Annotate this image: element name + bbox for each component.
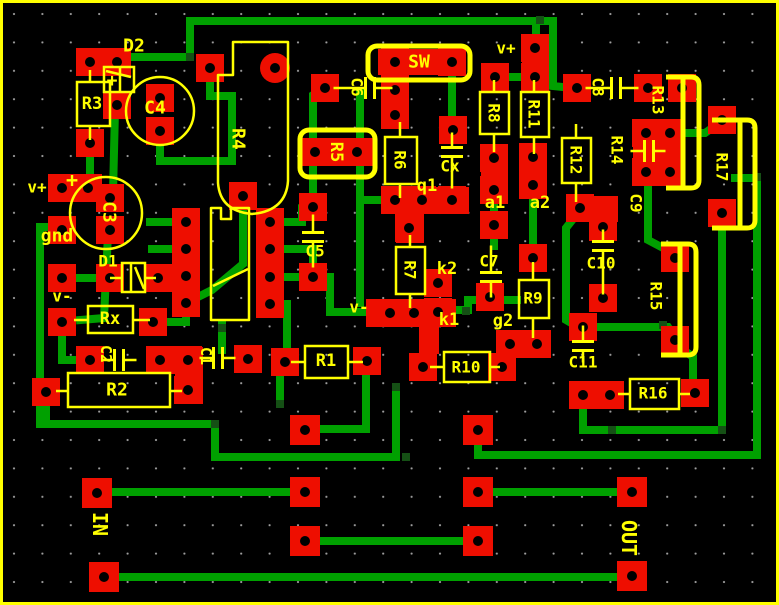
pad-hole xyxy=(390,85,400,95)
silk-label-v-[interactable]: v- xyxy=(52,287,71,306)
pad-hole xyxy=(489,153,499,163)
silk-label-g2[interactable]: g2 xyxy=(493,311,513,331)
pad-hole xyxy=(155,355,165,365)
pad-hole xyxy=(605,390,615,400)
pad-hole xyxy=(473,536,483,546)
silk-label-R9[interactable]: R9 xyxy=(523,289,542,308)
pad-hole xyxy=(183,355,193,365)
pad-hole xyxy=(385,308,395,318)
pad-hole xyxy=(352,147,362,157)
silk-label-gnd[interactable]: gnd xyxy=(41,226,74,247)
via[interactable] xyxy=(211,420,219,428)
pad-hole xyxy=(320,83,330,93)
pad-hole xyxy=(300,487,310,497)
pad-hole xyxy=(181,244,191,254)
silk-label-C5[interactable]: C5 xyxy=(305,242,324,261)
pad-hole xyxy=(473,487,483,497)
via[interactable] xyxy=(718,426,726,434)
silk-label-a1[interactable]: a1 xyxy=(485,193,505,213)
pad-hole xyxy=(280,357,290,367)
pad-hole xyxy=(362,356,372,366)
pad-hole xyxy=(390,57,400,67)
pad-hole xyxy=(265,272,275,282)
silk-label-k1[interactable]: k1 xyxy=(439,310,459,330)
silk-label-R3[interactable]: R3 xyxy=(82,94,102,114)
pad-hole xyxy=(390,110,400,120)
pcb-editor-canvas[interactable]: D2R3C4R4v+SWC6C8R13R8R11R14R12R17R5R6Cxq… xyxy=(0,0,779,605)
silk-label-k2[interactable]: k2 xyxy=(437,259,457,279)
silk-label-OUT[interactable]: OUT xyxy=(617,520,641,556)
pad-hole xyxy=(265,217,275,227)
silk-label-v+[interactable]: v+ xyxy=(496,39,516,58)
pad-hole xyxy=(300,425,310,435)
silk-label-R15[interactable]: R15 xyxy=(647,282,666,311)
pcb-board[interactable]: D2R3C4R4v+SWC6C8R13R8R11R14R12R17R5R6Cxq… xyxy=(0,0,779,605)
silk-label-R17[interactable]: R17 xyxy=(713,153,732,182)
pad-hole xyxy=(528,180,538,190)
silk-label-C8[interactable]: C8 xyxy=(589,77,608,96)
pad-hole xyxy=(308,202,318,212)
pad-hole xyxy=(404,223,414,233)
pad-hole xyxy=(532,339,542,349)
via[interactable] xyxy=(392,383,400,391)
pad-hole xyxy=(390,195,400,205)
via[interactable] xyxy=(186,53,194,61)
silk-label-R6[interactable]: R6 xyxy=(391,150,410,169)
silk-label-R14[interactable]: R14 xyxy=(608,136,627,165)
pad-hole xyxy=(85,57,95,67)
silk-label-R12[interactable]: R12 xyxy=(567,146,586,175)
silk-label-C4[interactable]: C4 xyxy=(144,98,166,119)
pad-hole xyxy=(641,167,651,177)
pad-hole xyxy=(183,385,193,395)
copper-trace[interactable] xyxy=(113,110,115,193)
pad-hole xyxy=(575,203,585,213)
silk-label-D1[interactable]: D1 xyxy=(98,252,117,271)
silk-label-q1[interactable]: q1 xyxy=(417,176,437,196)
pad-hole xyxy=(205,63,215,73)
silk-label-v-[interactable]: v- xyxy=(349,298,368,317)
silk-label-+[interactable]: + xyxy=(66,168,78,192)
via[interactable] xyxy=(402,453,410,461)
silk-label-a2[interactable]: a2 xyxy=(530,193,550,213)
pad-hole xyxy=(310,147,320,157)
silk-label-R10[interactable]: R10 xyxy=(452,358,481,377)
via[interactable] xyxy=(462,307,470,315)
pad-hole xyxy=(417,195,427,205)
silk-label-IN[interactable]: IN xyxy=(88,512,112,536)
pad-hole xyxy=(447,195,457,205)
pad-block[interactable] xyxy=(419,326,439,354)
silk-label-R8[interactable]: R8 xyxy=(485,103,504,122)
pad-hole xyxy=(530,43,540,53)
pad-hole xyxy=(572,83,582,93)
pad-hole xyxy=(308,272,318,282)
silk-label-R13[interactable]: R13 xyxy=(649,86,668,115)
silk-label-R16[interactable]: R16 xyxy=(639,384,668,403)
pad-hole xyxy=(148,317,158,327)
pad-hole xyxy=(627,571,637,581)
pad-hole xyxy=(433,278,443,288)
pad-hole xyxy=(265,244,275,254)
pad-hole xyxy=(665,167,675,177)
pad-hole xyxy=(578,390,588,400)
silk-label-v+[interactable]: v+ xyxy=(27,178,47,197)
pad-hole xyxy=(300,536,310,546)
silk-label-R7[interactable]: R7 xyxy=(401,260,420,279)
pad-hole xyxy=(85,355,95,365)
pad-hole xyxy=(181,298,191,308)
silk-label-C9[interactable]: C9 xyxy=(627,193,646,212)
pad-hole xyxy=(57,317,67,327)
via[interactable] xyxy=(218,324,226,332)
silk-label-C2[interactable]: C2 xyxy=(97,345,115,363)
via[interactable] xyxy=(276,400,284,408)
pad-hole xyxy=(418,362,428,372)
silk-label-C7[interactable]: C7 xyxy=(479,252,498,271)
pad-hole xyxy=(265,299,275,309)
pad-hole xyxy=(528,253,538,263)
pad-hole xyxy=(270,63,280,73)
pad-hole xyxy=(57,273,67,283)
pad-hole xyxy=(665,128,675,138)
silk-label-C11[interactable]: C11 xyxy=(569,353,598,372)
pad-hole xyxy=(112,100,122,110)
silk-label-R5[interactable]: R5 xyxy=(326,142,346,162)
pad-hole xyxy=(105,225,115,235)
pad-hole xyxy=(473,425,483,435)
pad-hole xyxy=(627,487,637,497)
silk-label-Rx[interactable]: Rx xyxy=(100,309,120,329)
pad-hole xyxy=(181,217,191,227)
pad-hole xyxy=(155,126,165,136)
pad-hole xyxy=(505,339,515,349)
pad-hole xyxy=(112,57,122,67)
pad-hole xyxy=(447,57,457,67)
pad-hole xyxy=(489,220,499,230)
pad-hole xyxy=(641,128,651,138)
pad-hole xyxy=(243,354,253,364)
silk-label-C6[interactable]: C6 xyxy=(348,77,367,96)
silk-label-R2[interactable]: R2 xyxy=(106,380,128,401)
pad-hole xyxy=(41,387,51,397)
silk-label-C3[interactable]: C3 xyxy=(99,201,120,223)
silk-label-Cx[interactable]: Cx xyxy=(440,157,460,176)
silk-label-R1[interactable]: R1 xyxy=(316,351,336,371)
pad-hole xyxy=(409,308,419,318)
silk-label-SW[interactable]: SW xyxy=(408,52,430,73)
pad-hole xyxy=(238,191,248,201)
pad-hole xyxy=(99,572,109,582)
via[interactable] xyxy=(536,16,544,24)
silk-label-R11[interactable]: R11 xyxy=(525,100,544,129)
silk-label-D2[interactable]: D2 xyxy=(123,36,145,57)
via[interactable] xyxy=(608,426,616,434)
silk-label-+[interactable]: + xyxy=(107,71,118,92)
silk-label-R4[interactable]: R4 xyxy=(228,128,249,150)
silk-label-C1[interactable]: C1 xyxy=(197,347,215,365)
pad-hole xyxy=(181,271,191,281)
pad-hole xyxy=(717,208,727,218)
pad-hole xyxy=(690,388,700,398)
silk-label-C10[interactable]: C10 xyxy=(587,254,616,273)
pad-hole xyxy=(92,488,102,498)
